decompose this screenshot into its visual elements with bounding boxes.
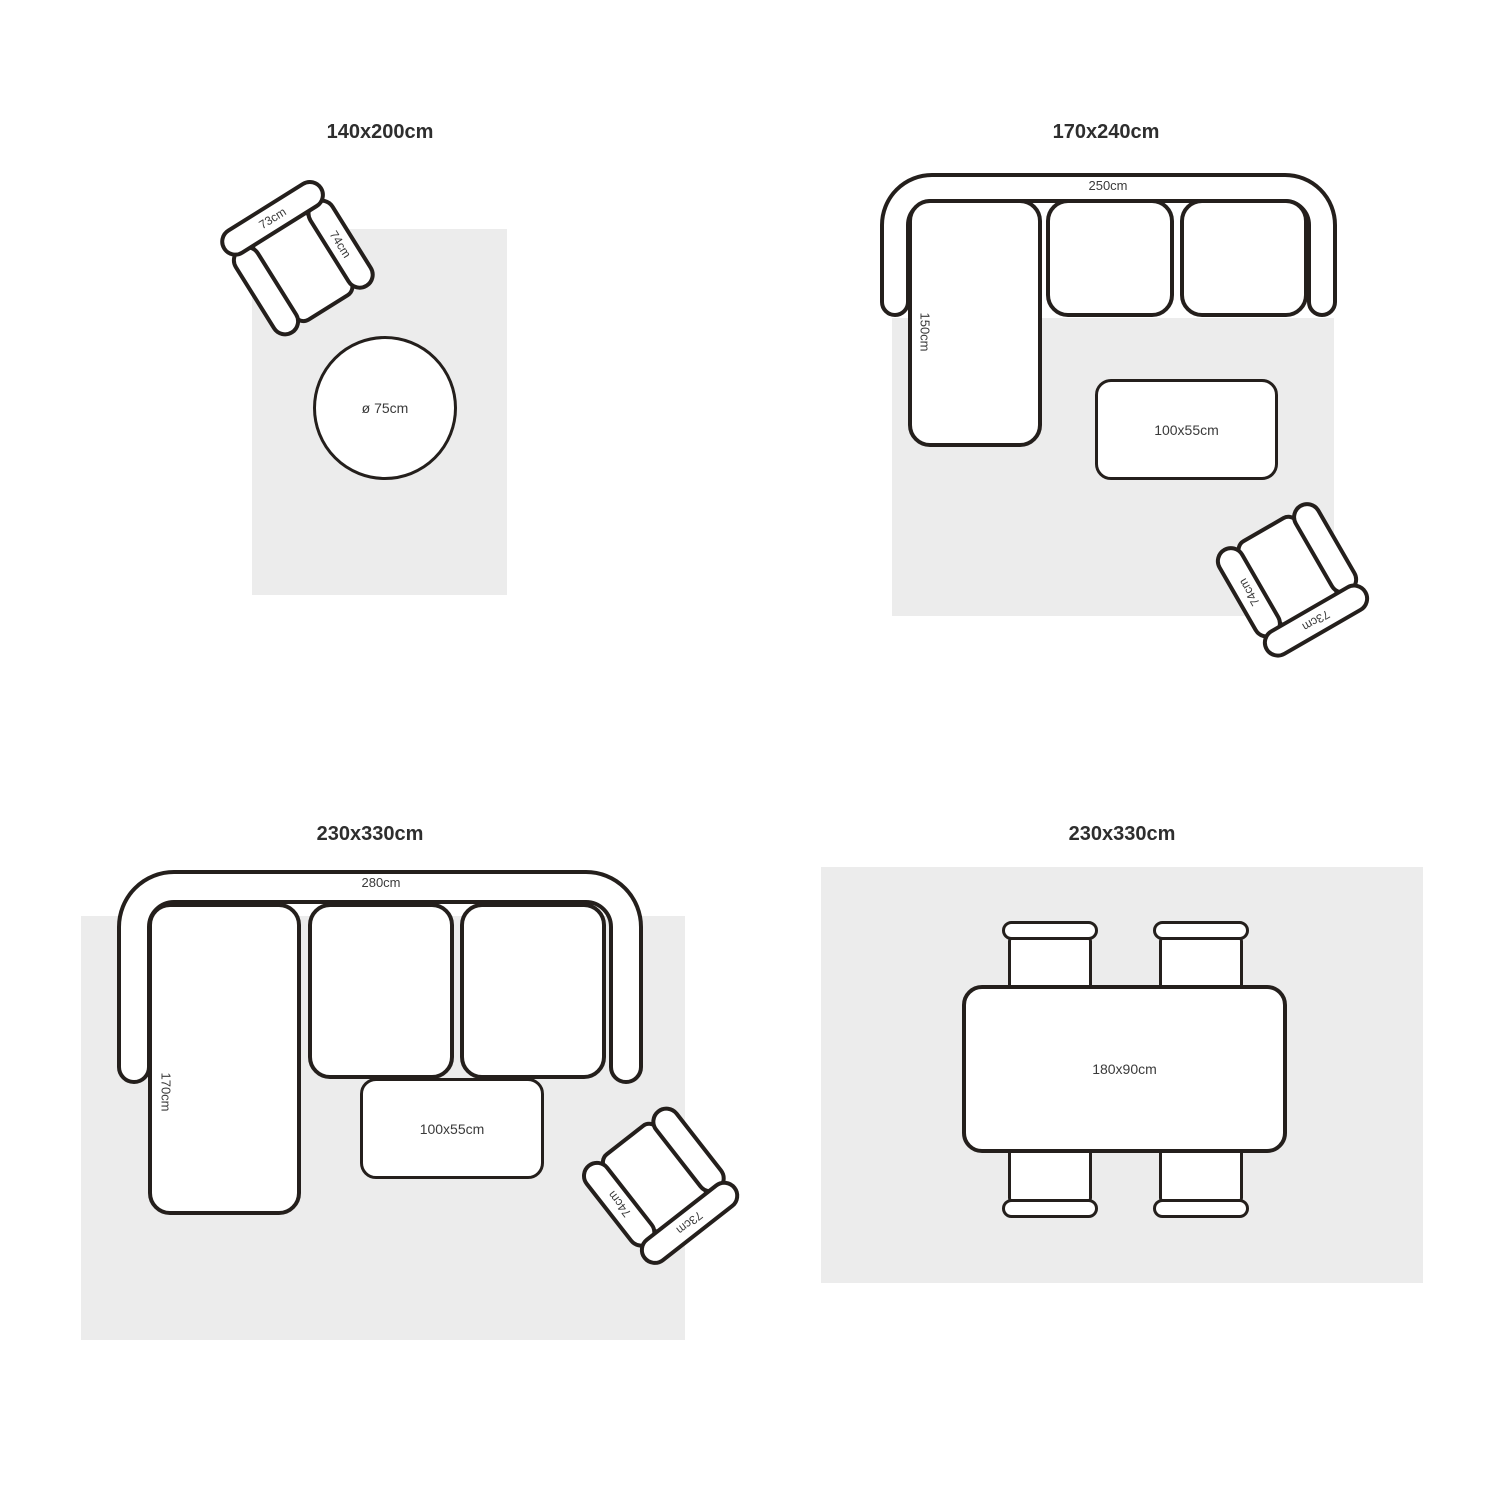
dining-chair bbox=[1002, 1148, 1098, 1218]
armchair-back-dimension-label: 73cm bbox=[1300, 607, 1332, 634]
dining-chair-back bbox=[1002, 1199, 1098, 1218]
sofa-width-label: 250cm bbox=[1088, 178, 1127, 193]
dining-chair-seat bbox=[1159, 936, 1243, 991]
sofa-seat-cushion bbox=[1046, 199, 1174, 317]
sofa-seat-cushion bbox=[308, 903, 454, 1079]
dining-chair-back bbox=[1002, 921, 1098, 940]
rug-size-title-170x240: 170x240cm bbox=[1053, 121, 1160, 144]
armchair-back-dimension-label: 73cm bbox=[674, 1208, 706, 1237]
dining-chair bbox=[1153, 921, 1249, 991]
round-side-table: ø 75cm bbox=[313, 336, 457, 480]
dining-chair-seat bbox=[1159, 1148, 1243, 1203]
coffee-table: 100x55cm bbox=[1095, 379, 1278, 480]
dining-table: 180x90cm bbox=[962, 985, 1287, 1153]
rug-size-title-140x200: 140x200cm bbox=[327, 121, 434, 144]
dining-chair-seat bbox=[1008, 936, 1092, 991]
dining-chair-back bbox=[1153, 921, 1249, 940]
sofa-depth-label: 150cm bbox=[918, 312, 933, 351]
sofa-width-label: 280cm bbox=[361, 875, 400, 890]
coffee-table: 100x55cm bbox=[360, 1078, 544, 1179]
coffee-table-dimension-label: 100x55cm bbox=[420, 1121, 485, 1137]
dining-chair bbox=[1153, 1148, 1249, 1218]
armchair-arm-dimension-label: 74cm bbox=[327, 228, 354, 260]
rug-size-title-230x330-left: 230x330cm bbox=[317, 823, 424, 846]
armchair-back-dimension-label: 73cm bbox=[256, 205, 288, 232]
armchair-arm-dimension-label: 74cm bbox=[605, 1188, 634, 1220]
sofa-chaise-cushion bbox=[148, 903, 301, 1215]
round-table-dimension-label: ø 75cm bbox=[362, 400, 409, 416]
sofa-seat-cushion bbox=[460, 903, 606, 1079]
dining-chair-seat bbox=[1008, 1148, 1092, 1203]
dining-chair bbox=[1002, 921, 1098, 991]
rug-size-guide-diagram: 140x200cm 74cm 73cm ø 75cm 170x240cm 250… bbox=[0, 0, 1500, 1500]
rug-size-title-230x330-right: 230x330cm bbox=[1069, 823, 1176, 846]
sofa-depth-label: 170cm bbox=[159, 1072, 174, 1111]
coffee-table-dimension-label: 100x55cm bbox=[1154, 422, 1219, 438]
sofa-seat-cushion bbox=[1180, 199, 1308, 317]
dining-chair-back bbox=[1153, 1199, 1249, 1218]
armchair-arm-dimension-label: 74cm bbox=[1235, 576, 1262, 608]
dining-table-dimension-label: 180x90cm bbox=[1092, 1061, 1157, 1077]
